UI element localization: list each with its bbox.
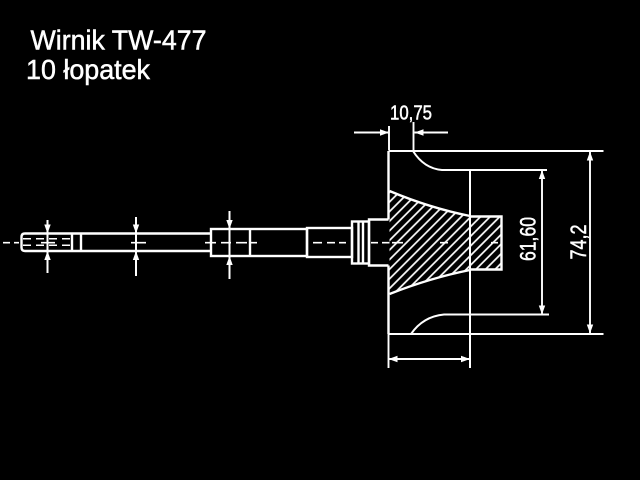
svg-text:10 łopatek: 10 łopatek <box>26 54 151 85</box>
svg-text:61,60: 61,60 <box>516 217 541 261</box>
svg-text:74,2: 74,2 <box>566 225 591 260</box>
svg-text:10,75: 10,75 <box>390 103 432 125</box>
svg-text:Wirnik TW-477: Wirnik TW-477 <box>31 25 207 56</box>
